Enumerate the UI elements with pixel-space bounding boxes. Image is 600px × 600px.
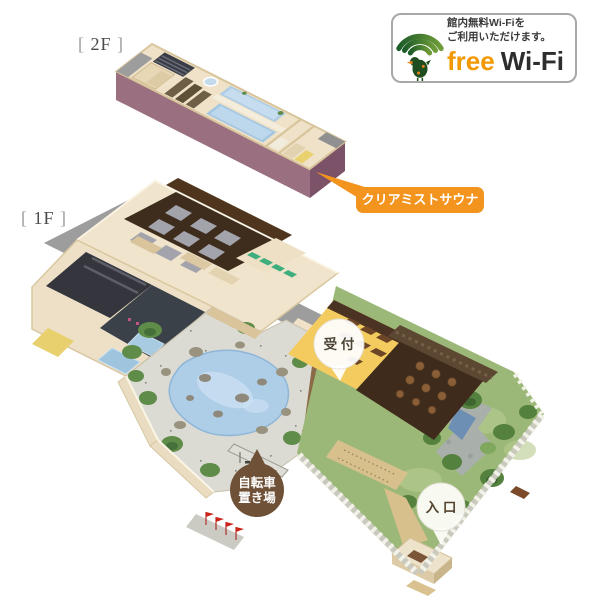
rock (213, 411, 223, 418)
walkway-path (186, 514, 244, 550)
floor-label-2f: [ 2F ] (78, 34, 124, 55)
bracket: [ (21, 208, 34, 228)
free-wifi-wordmark: free Wi-Fi (447, 45, 564, 79)
bracket: ] (55, 208, 68, 228)
rock (257, 379, 267, 386)
bicycle-marker-label-1: 自転車 (238, 475, 276, 490)
rock (281, 408, 291, 416)
facility-map-page: 受 付 自転車 置き場 入 口 [ 2F ] [ 1F ] 館内無 (0, 0, 600, 600)
floor-1f-complex (32, 178, 544, 596)
round-table (412, 398, 420, 406)
bird-beak (407, 61, 413, 65)
reception-marker-label: 受 付 (324, 336, 355, 352)
wifi-jp-line2: ご利用いただけます。 (447, 31, 564, 45)
floor-label-1f-text: 1F (34, 208, 55, 228)
bush (139, 391, 157, 405)
wifi-text: Wi-Fi (501, 45, 564, 79)
bush (283, 431, 301, 445)
bird-spot (422, 65, 425, 68)
sauna-callout-label: クリアミストサウナ (356, 187, 484, 213)
entrance-marker-label: 入 口 (426, 500, 457, 515)
rock (186, 395, 194, 401)
rock (161, 368, 171, 376)
bush-core (144, 328, 156, 336)
bush (122, 345, 142, 359)
rock (256, 426, 268, 434)
garden-bench (510, 486, 530, 499)
floor-map-illustration: 受 付 自転車 置き場 入 口 (0, 0, 600, 600)
rock (235, 342, 245, 349)
bush (128, 370, 144, 382)
free-text: free (447, 45, 495, 79)
floor-label-2f-text: 2F (91, 34, 112, 54)
wifi-jp-line1: 館内無料Wi-Fiを (447, 17, 564, 31)
round-table (406, 376, 415, 385)
wifi-arc-inner (410, 48, 429, 53)
bicycle-marker-circle (230, 463, 284, 517)
tree (519, 405, 537, 419)
tree (493, 424, 515, 440)
floor-2f-building (116, 44, 345, 198)
round-table (396, 390, 404, 398)
bush (200, 463, 220, 477)
round-table (422, 384, 431, 393)
rock (174, 421, 186, 429)
1f-flag-walkway (186, 512, 244, 550)
bracket: [ (78, 34, 91, 54)
rock (276, 368, 288, 377)
bird-spot (417, 71, 420, 74)
round-table (432, 370, 441, 379)
bird-mascot (407, 57, 431, 81)
bracket: ] (112, 34, 125, 54)
rock (199, 374, 211, 382)
rock (235, 394, 249, 403)
round-table (448, 378, 457, 387)
wifi-bird-icon (395, 15, 445, 81)
round-table (428, 406, 436, 414)
round-table (416, 362, 425, 371)
tree (442, 454, 462, 470)
floor-label-1f: [ 1F ] (21, 208, 67, 229)
rock (189, 347, 203, 357)
free-wifi-badge: 館内無料Wi-Fiを ご利用いただけます。 free Wi-Fi (391, 13, 577, 83)
bird-tail (426, 60, 431, 66)
tree-light (480, 442, 496, 454)
bicycle-marker-label-2: 置き場 (238, 490, 276, 505)
wifi-badge-text: 館内無料Wi-Fiを ご利用いただけます。 free Wi-Fi (447, 17, 564, 78)
round-table (438, 392, 447, 401)
bird-legs (418, 78, 423, 81)
